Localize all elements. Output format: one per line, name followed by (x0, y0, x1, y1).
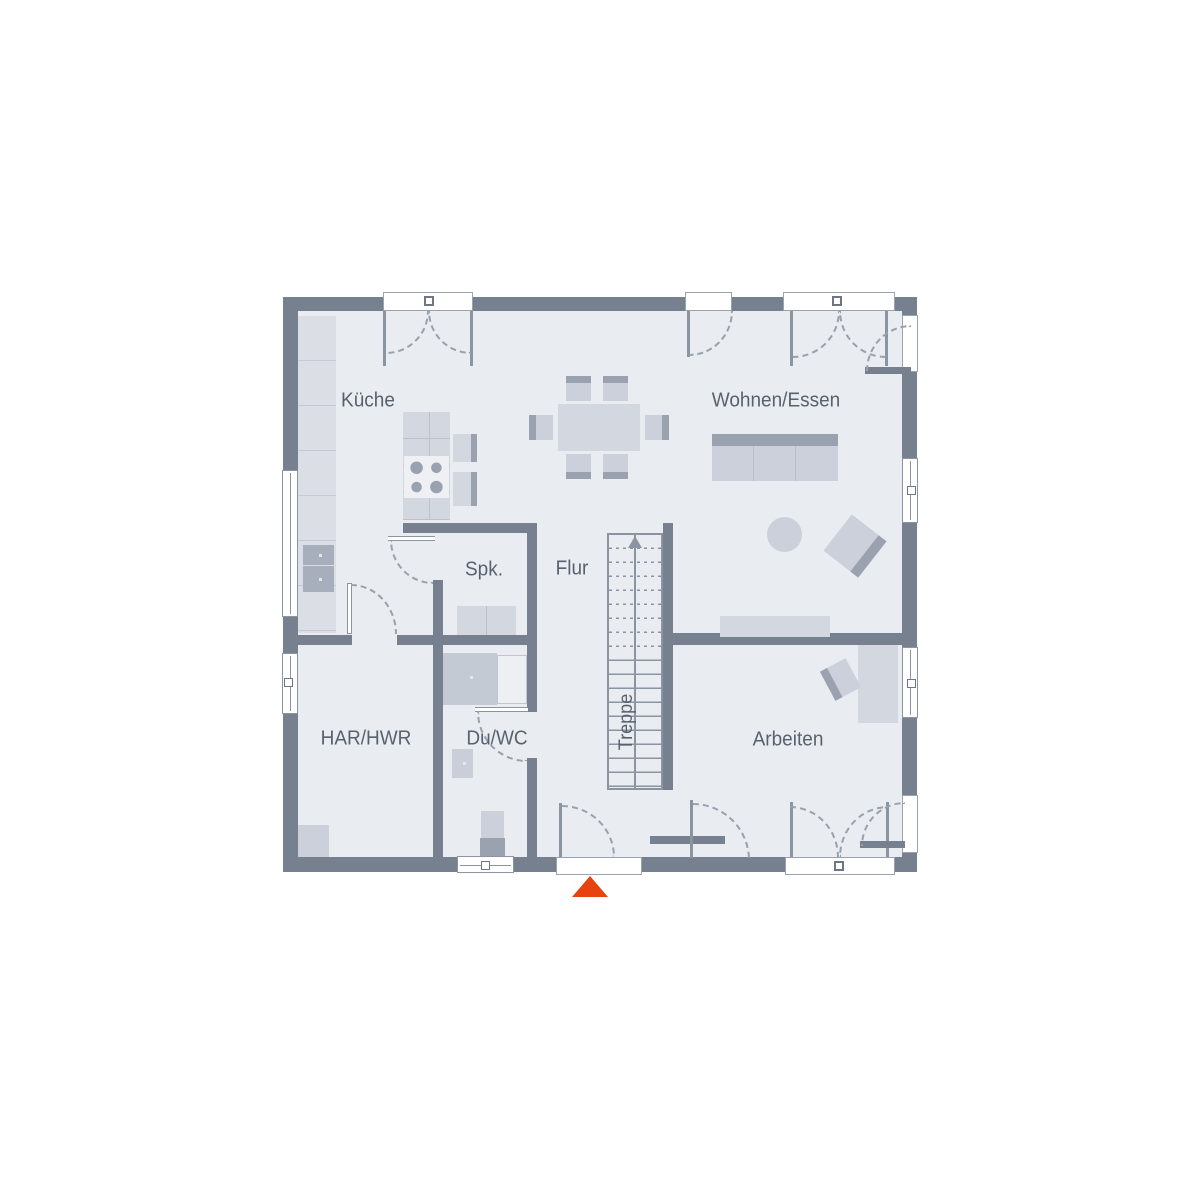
wall-stair-right (663, 523, 673, 790)
sofa (712, 434, 838, 481)
staircase-up-arrow-icon (628, 536, 642, 548)
window-handle (284, 678, 293, 687)
kitchen-sink-upper (303, 545, 334, 565)
dining-chair (566, 454, 591, 479)
coffee-table (767, 517, 802, 552)
wall-vestibule-left (433, 580, 443, 857)
wall-spk-top (403, 523, 537, 533)
dining-table (558, 404, 640, 451)
pantry-cabinet (457, 606, 516, 635)
utility-appliance (298, 825, 329, 857)
sideboard (720, 616, 830, 637)
shutter-box (832, 296, 842, 306)
dining-chair (529, 415, 553, 440)
kitchen-unit-1 (453, 434, 477, 462)
desk (858, 645, 898, 723)
wall-har-top-right (397, 635, 537, 645)
dining-chair (566, 376, 591, 401)
wall-duwc-right-lower (527, 758, 537, 857)
floor-plan: Küche Wohnen/Essen Spk. Flur Treppe HAR/… (0, 0, 1200, 1200)
shower-tray (497, 655, 527, 704)
wall-har-top-left (298, 635, 352, 645)
kitchen-unit-2 (453, 472, 477, 506)
room-label-flur: Flur (556, 558, 589, 581)
room-label-spk: Spk. (465, 559, 503, 582)
wall-spk-duwc-right-upper (527, 523, 537, 712)
room-label-du-wc: Du/WC (466, 728, 527, 751)
shutter-box (834, 861, 844, 871)
room-label-wohnen-essen: Wohnen/Essen (712, 390, 841, 413)
washbasin (452, 749, 473, 778)
dining-chair (603, 376, 628, 401)
wc-bowl (480, 838, 505, 857)
entrance-door (556, 857, 642, 875)
shower (443, 653, 497, 705)
room-label-kueche: Küche (341, 390, 395, 413)
room-label-arbeiten: Arbeiten (753, 729, 824, 752)
entrance-arrow-icon (572, 876, 608, 897)
door-top-single (685, 292, 732, 311)
dining-chair (603, 454, 628, 479)
window-handle (907, 486, 916, 495)
cooktop (404, 456, 449, 498)
shutter-box (424, 296, 434, 306)
window-handle (907, 679, 916, 688)
kitchen-sink-lower (303, 566, 334, 592)
room-label-har-hwr: HAR/HWR (321, 728, 412, 751)
window-handle (481, 861, 490, 870)
window-kitchen (282, 470, 298, 617)
wc-tank (481, 811, 504, 838)
dining-chair (645, 415, 669, 440)
room-label-treppe: Treppe (616, 694, 638, 751)
